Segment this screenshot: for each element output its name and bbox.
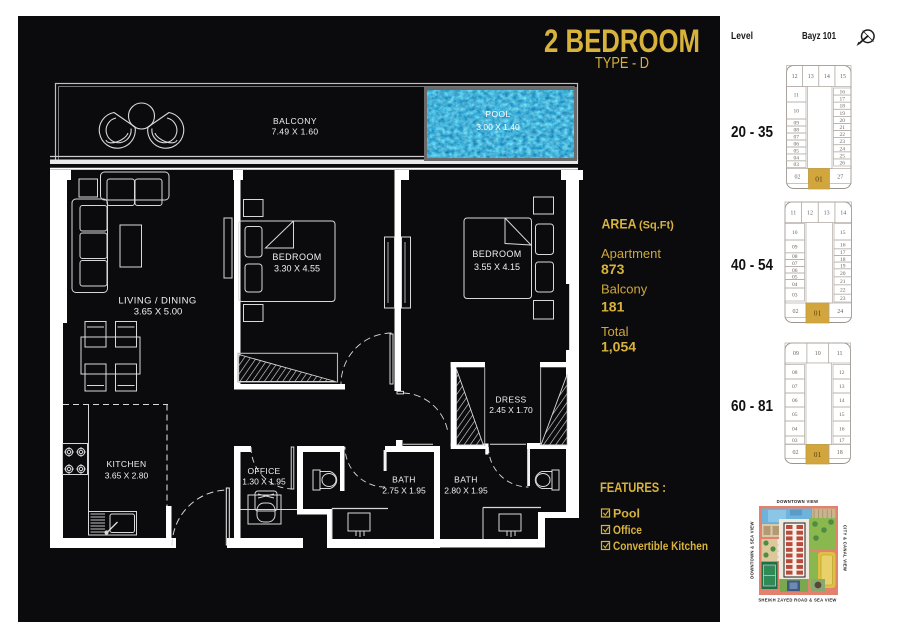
svg-text:05: 05 [792, 412, 798, 418]
svg-text:17: 17 [839, 438, 845, 444]
svg-text:SHEIKH ZAYED ROAD & SEA VIEW: SHEIKH ZAYED ROAD & SEA VIEW [758, 598, 836, 603]
svg-text:03: 03 [792, 293, 798, 299]
svg-text:03: 03 [794, 162, 800, 168]
svg-text:14: 14 [839, 398, 845, 404]
svg-text:19: 19 [840, 111, 846, 117]
svg-text:11: 11 [794, 92, 800, 98]
svg-text:22: 22 [840, 132, 846, 138]
svg-text:01: 01 [814, 450, 822, 459]
svg-text:Apartment: Apartment [601, 246, 661, 261]
svg-text:3.65 X 5.00: 3.65 X 5.00 [134, 307, 183, 318]
svg-text:17: 17 [840, 97, 846, 103]
svg-text:15: 15 [840, 74, 846, 80]
svg-text:09: 09 [793, 351, 799, 357]
svg-text:DRESS: DRESS [495, 395, 526, 405]
svg-text:POOL: POOL [485, 109, 510, 119]
svg-text:FEATURES :: FEATURES : [600, 480, 666, 495]
svg-text:02: 02 [793, 450, 799, 456]
svg-text:1.30 X 1.95: 1.30 X 1.95 [242, 477, 286, 487]
svg-text:Convertible Kitchen: Convertible Kitchen [613, 541, 708, 553]
svg-text:TYPE - D: TYPE - D [595, 55, 649, 72]
svg-text:02: 02 [793, 309, 799, 315]
svg-text:3.65 X 2.80: 3.65 X 2.80 [105, 471, 149, 481]
svg-text:07: 07 [792, 261, 798, 267]
svg-text:(Sq.Ft): (Sq.Ft) [639, 220, 674, 232]
svg-text:16: 16 [840, 90, 846, 96]
svg-text:DOWNTOWN & SEA VIEW: DOWNTOWN & SEA VIEW [750, 521, 755, 578]
svg-text:181: 181 [601, 299, 625, 315]
svg-text:02: 02 [795, 175, 801, 181]
svg-text:14: 14 [824, 74, 830, 80]
svg-text:07: 07 [792, 384, 798, 390]
svg-text:13: 13 [824, 210, 830, 216]
svg-text:2.80 X 1.95: 2.80 X 1.95 [444, 486, 488, 496]
svg-text:2 BEDROOM: 2 BEDROOM [544, 23, 700, 59]
svg-text:13: 13 [839, 384, 845, 390]
svg-text:Bayz 101: Bayz 101 [802, 30, 836, 42]
svg-text:01: 01 [814, 309, 822, 318]
svg-text:Balcony: Balcony [601, 282, 648, 297]
svg-text:10: 10 [815, 351, 821, 357]
svg-text:2.45 X 1.70: 2.45 X 1.70 [489, 405, 533, 415]
svg-text:AREA: AREA [602, 216, 637, 232]
svg-text:18: 18 [837, 450, 843, 456]
svg-text:04: 04 [792, 427, 798, 433]
svg-text:21: 21 [840, 125, 846, 131]
svg-text:08: 08 [794, 128, 800, 134]
svg-text:Pool: Pool [613, 509, 640, 521]
svg-text:Office: Office [613, 525, 642, 537]
svg-text:OFFICE: OFFICE [248, 466, 281, 476]
svg-text:10: 10 [794, 109, 800, 115]
svg-text:20: 20 [840, 118, 846, 124]
svg-text:11: 11 [790, 210, 796, 216]
svg-text:11: 11 [837, 351, 843, 357]
svg-text:BEDROOM: BEDROOM [272, 252, 321, 262]
svg-text:20: 20 [840, 271, 846, 277]
svg-text:12: 12 [792, 74, 798, 80]
svg-text:08: 08 [792, 370, 798, 376]
svg-text:09: 09 [794, 121, 800, 127]
svg-text:7.49 X 1.60: 7.49 X 1.60 [272, 127, 319, 137]
svg-text:06: 06 [794, 142, 800, 148]
svg-text:04: 04 [792, 282, 798, 288]
svg-text:16: 16 [840, 242, 846, 248]
svg-text:3.00 X 1.40: 3.00 X 1.40 [476, 122, 520, 132]
svg-text:21: 21 [840, 279, 846, 285]
svg-text:3.55 X 4.15: 3.55 X 4.15 [474, 262, 520, 272]
svg-text:Total: Total [601, 324, 629, 339]
svg-text:15: 15 [840, 230, 846, 236]
svg-text:24: 24 [840, 146, 846, 152]
svg-text:Level: Level [731, 30, 753, 42]
svg-text:873: 873 [601, 261, 625, 277]
svg-text:60 - 81: 60 - 81 [731, 398, 773, 415]
svg-text:12: 12 [807, 210, 813, 216]
svg-text:23: 23 [840, 139, 846, 145]
svg-text:13: 13 [808, 74, 814, 80]
svg-text:27: 27 [837, 175, 843, 181]
svg-text:BATH: BATH [454, 475, 478, 485]
svg-text:09: 09 [792, 244, 798, 250]
svg-text:BATH: BATH [392, 475, 416, 485]
svg-text:16: 16 [839, 427, 845, 433]
svg-text:22: 22 [840, 288, 846, 294]
svg-text:3.30 X 4.55: 3.30 X 4.55 [274, 264, 320, 274]
svg-text:26: 26 [840, 160, 846, 166]
svg-text:18: 18 [840, 104, 846, 110]
svg-text:40 - 54: 40 - 54 [731, 257, 773, 274]
svg-text:15: 15 [839, 412, 845, 418]
svg-text:23: 23 [840, 296, 846, 302]
svg-text:DOWNTOWN VIEW: DOWNTOWN VIEW [777, 499, 819, 504]
svg-text:25: 25 [840, 153, 846, 159]
svg-text:KITCHEN: KITCHEN [106, 459, 146, 469]
svg-text:20 - 35: 20 - 35 [731, 124, 773, 141]
svg-text:BEDROOM: BEDROOM [472, 249, 521, 259]
svg-text:03: 03 [792, 438, 798, 444]
svg-text:BALCONY: BALCONY [273, 116, 317, 126]
svg-text:12: 12 [839, 370, 845, 376]
svg-text:24: 24 [837, 309, 843, 315]
svg-text:LIVING / DINING: LIVING / DINING [118, 296, 196, 307]
svg-text:07: 07 [794, 135, 800, 141]
svg-text:14: 14 [840, 210, 846, 216]
svg-text:10: 10 [792, 230, 798, 236]
svg-text:01: 01 [815, 174, 823, 183]
svg-text:1,054: 1,054 [601, 339, 636, 355]
svg-text:2.75 X 1.95: 2.75 X 1.95 [382, 486, 426, 496]
svg-text:06: 06 [792, 398, 798, 404]
svg-text:CITY & CANAL VIEW: CITY & CANAL VIEW [843, 525, 848, 571]
